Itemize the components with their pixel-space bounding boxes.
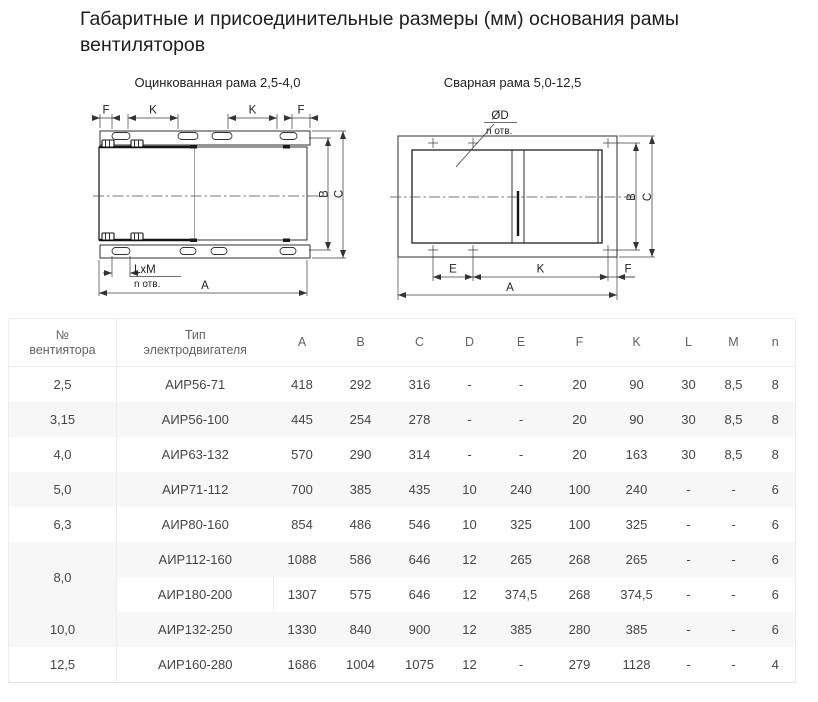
fan-number-cell: 2,5 [9, 367, 117, 403]
header-row: № вентиятора Тип электродвигателя A B C … [9, 319, 796, 367]
motor-type-cell: АИР80-160 [117, 507, 274, 542]
dim-cell: 570 [274, 437, 331, 472]
table-row: 4,0 АИР63-132 570 290 314 - - 20 163 30 … [9, 437, 796, 472]
dim-cell: 280 [552, 612, 608, 647]
dim-cell: - [449, 367, 491, 403]
dim-cell: 20 [552, 437, 608, 472]
fan-number-cell: 3,15 [9, 402, 117, 437]
table-row: 8,0 АИР112-160 1088 586 646 12 265 268 2… [9, 542, 796, 577]
motor-type-cell: АИР71-112 [117, 472, 274, 507]
table-row: 6,3 АИР80-160 854 486 546 10 325 100 325… [9, 507, 796, 542]
dim-cell: 268 [552, 577, 608, 612]
column-header-m: M [712, 319, 756, 367]
table-row: 5,0 АИР71-112 700 385 435 10 240 100 240… [9, 472, 796, 507]
dim-cell: 840 [331, 612, 391, 647]
dim-label-c: C [334, 190, 346, 198]
column-header-motor-type: Тип электродвигателя [117, 319, 274, 367]
table-row: 10,0 АИР132-250 1330 840 900 12 385 280 … [9, 612, 796, 647]
dim-cell: - [666, 577, 712, 612]
welded-frame-figure: Сварная рама 5,0-12,5 [390, 74, 690, 305]
table-row: 12,5 АИР160-280 1686 1004 1075 12 - 279 … [9, 647, 796, 683]
fan-number-cell: 5,0 [9, 472, 117, 507]
dim-cell: 385 [331, 472, 391, 507]
dim-cell: 6 [756, 577, 796, 612]
dim-cell: 30 [666, 402, 712, 437]
fan-number-cell: 10,0 [9, 612, 117, 647]
motor-type-cell: АИР180-200 [117, 577, 274, 612]
table-row: 3,15 АИР56-100 445 254 278 - - 20 90 30 … [9, 402, 796, 437]
holes-count-label: n отв. [486, 126, 512, 137]
dim-cell: 325 [608, 507, 666, 542]
dim-cell: 265 [491, 542, 552, 577]
motor-type-cell: АИР56-100 [117, 402, 274, 437]
dim-cell: 278 [391, 402, 449, 437]
dim-cell: 8,5 [712, 437, 756, 472]
dim-cell: 1128 [608, 647, 666, 683]
dim-label-f: F [297, 105, 304, 117]
dim-cell: 30 [666, 367, 712, 403]
fan-number-cell: 4,0 [9, 437, 117, 472]
dim-cell: 374,5 [608, 577, 666, 612]
dim-cell: 1307 [274, 577, 331, 612]
dim-cell: 268 [552, 542, 608, 577]
dim-cell: 30 [666, 437, 712, 472]
dim-cell: 854 [274, 507, 331, 542]
dim-cell: 1004 [331, 647, 391, 683]
dim-cell: 546 [391, 507, 449, 542]
dim-cell: 20 [552, 367, 608, 403]
dim-cell: 10 [449, 507, 491, 542]
dim-cell: 374,5 [491, 577, 552, 612]
dim-cell: 12 [449, 577, 491, 612]
dim-label-k: K [149, 105, 157, 117]
welded-frame-diagram: ØD n отв. B C E K F A [390, 105, 690, 305]
dim-cell: 418 [274, 367, 331, 403]
motor-type-cell: АИР132-250 [117, 612, 274, 647]
dim-cell: 316 [391, 367, 449, 403]
dimensions-table: № вентиятора Тип электродвигателя A B C … [8, 318, 796, 683]
column-header-d: D [449, 319, 491, 367]
dim-cell: 90 [608, 367, 666, 403]
dim-label-lxm: LxM [134, 264, 156, 276]
fan-number-cell: 12,5 [9, 647, 117, 683]
column-header-f: F [552, 319, 608, 367]
dim-cell: 325 [491, 507, 552, 542]
column-header-e: E [491, 319, 552, 367]
galvanized-frame-diagram: F K K F B C LxM n отв. A [85, 95, 350, 310]
dim-cell: 1088 [274, 542, 331, 577]
dim-cell: - [712, 577, 756, 612]
dim-cell: 100 [552, 472, 608, 507]
motor-type-cell: АИР56-71 [117, 367, 274, 403]
dim-cell: 8,5 [712, 367, 756, 403]
welded-frame-caption: Сварная рама 5,0-12,5 [390, 74, 635, 92]
dim-cell: 314 [391, 437, 449, 472]
dim-cell: 290 [331, 437, 391, 472]
dim-label-f: F [102, 105, 109, 117]
dim-cell: 10 [449, 472, 491, 507]
column-header-c: C [391, 319, 449, 367]
column-header-fan-number: № вентиятора [9, 319, 117, 367]
dim-cell: 265 [608, 542, 666, 577]
dim-cell: 279 [552, 647, 608, 683]
dim-cell: 486 [331, 507, 391, 542]
dim-cell: - [712, 472, 756, 507]
dim-cell: 700 [274, 472, 331, 507]
dim-cell: - [449, 402, 491, 437]
dim-label-b: B [626, 193, 638, 201]
dim-cell: - [666, 472, 712, 507]
dim-cell: 240 [608, 472, 666, 507]
dim-cell: - [666, 612, 712, 647]
column-header-b: B [331, 319, 391, 367]
dim-label-a: A [201, 280, 209, 292]
dim-cell: 6 [756, 472, 796, 507]
dim-cell: 445 [274, 402, 331, 437]
galvanized-frame-figure: Оцинкованная рама 2,5-4,0 [85, 74, 350, 310]
dim-label-f: F [624, 264, 631, 276]
dim-cell: 385 [608, 612, 666, 647]
dim-cell: - [712, 612, 756, 647]
dim-cell: 8 [756, 402, 796, 437]
dim-cell: 646 [391, 577, 449, 612]
dim-cell: 1686 [274, 647, 331, 683]
motor-type-cell: АИР63-132 [117, 437, 274, 472]
dim-cell: 100 [552, 507, 608, 542]
hole-marks [428, 138, 613, 255]
holes-count-label: n отв. [134, 279, 160, 290]
dim-cell: - [449, 437, 491, 472]
dim-cell: 90 [608, 402, 666, 437]
dim-cell: 254 [331, 402, 391, 437]
dim-cell: - [712, 507, 756, 542]
dim-cell: 12 [449, 612, 491, 647]
dim-label-c: C [642, 193, 654, 201]
galvanized-frame-caption: Оцинкованная рама 2,5-4,0 [85, 74, 350, 92]
dim-cell: - [712, 647, 756, 683]
dim-cell: 385 [491, 612, 552, 647]
dim-cell: 12 [449, 647, 491, 683]
dim-cell: - [666, 507, 712, 542]
dim-cell: - [712, 542, 756, 577]
dim-cell: 8 [756, 437, 796, 472]
hole-diameter-label: ØD [491, 110, 508, 122]
dim-cell: 586 [331, 542, 391, 577]
dim-cell: - [491, 437, 552, 472]
leader-line [456, 124, 494, 167]
fan-number-cell: 8,0 [9, 542, 117, 612]
dim-cell: 646 [391, 542, 449, 577]
fan-number-cell: 6,3 [9, 507, 117, 542]
dim-cell: - [491, 402, 552, 437]
dim-cell: - [666, 647, 712, 683]
column-header-l: L [666, 319, 712, 367]
header-line: № [9, 328, 116, 343]
dim-label-k: K [249, 105, 257, 117]
dim-cell: 435 [391, 472, 449, 507]
dim-cell: - [666, 542, 712, 577]
dim-cell: 20 [552, 402, 608, 437]
dim-label-b: B [319, 190, 331, 198]
dim-cell: 8,5 [712, 402, 756, 437]
dim-cell: 240 [491, 472, 552, 507]
dim-cell: 1330 [274, 612, 331, 647]
column-header-n: n [756, 319, 796, 367]
dim-label-e: E [449, 264, 457, 276]
motor-type-cell: АИР160-280 [117, 647, 274, 683]
page-title: Габаритные и присоединительные размеры (… [80, 6, 770, 58]
table-row: АИР180-200 1307 575 646 12 374,5 268 374… [9, 577, 796, 612]
dim-cell: 163 [608, 437, 666, 472]
header-line: вентиятора [9, 343, 116, 358]
dim-cell: - [491, 367, 552, 403]
dim-label-k: K [537, 264, 545, 276]
dim-cell: 4 [756, 647, 796, 683]
dim-cell: - [491, 647, 552, 683]
column-header-k: K [608, 319, 666, 367]
dim-cell: 12 [449, 542, 491, 577]
dim-cell: 8 [756, 367, 796, 403]
dim-cell: 292 [331, 367, 391, 403]
bolt-symbols [102, 140, 143, 240]
column-header-a: A [274, 319, 331, 367]
dim-cell: 6 [756, 612, 796, 647]
dim-cell: 6 [756, 542, 796, 577]
header-line: электродвигателя [117, 343, 274, 358]
table-row: 2,5 АИР56-71 418 292 316 - - 20 90 30 8,… [9, 367, 796, 403]
dim-label-a: A [506, 282, 514, 294]
motor-type-cell: АИР112-160 [117, 542, 274, 577]
dim-cell: 6 [756, 507, 796, 542]
page: Габаритные и присоединительные размеры (… [0, 0, 818, 702]
dim-cell: 575 [331, 577, 391, 612]
header-line: Тип [117, 328, 274, 343]
dim-cell: 900 [391, 612, 449, 647]
dim-cell: 1075 [391, 647, 449, 683]
